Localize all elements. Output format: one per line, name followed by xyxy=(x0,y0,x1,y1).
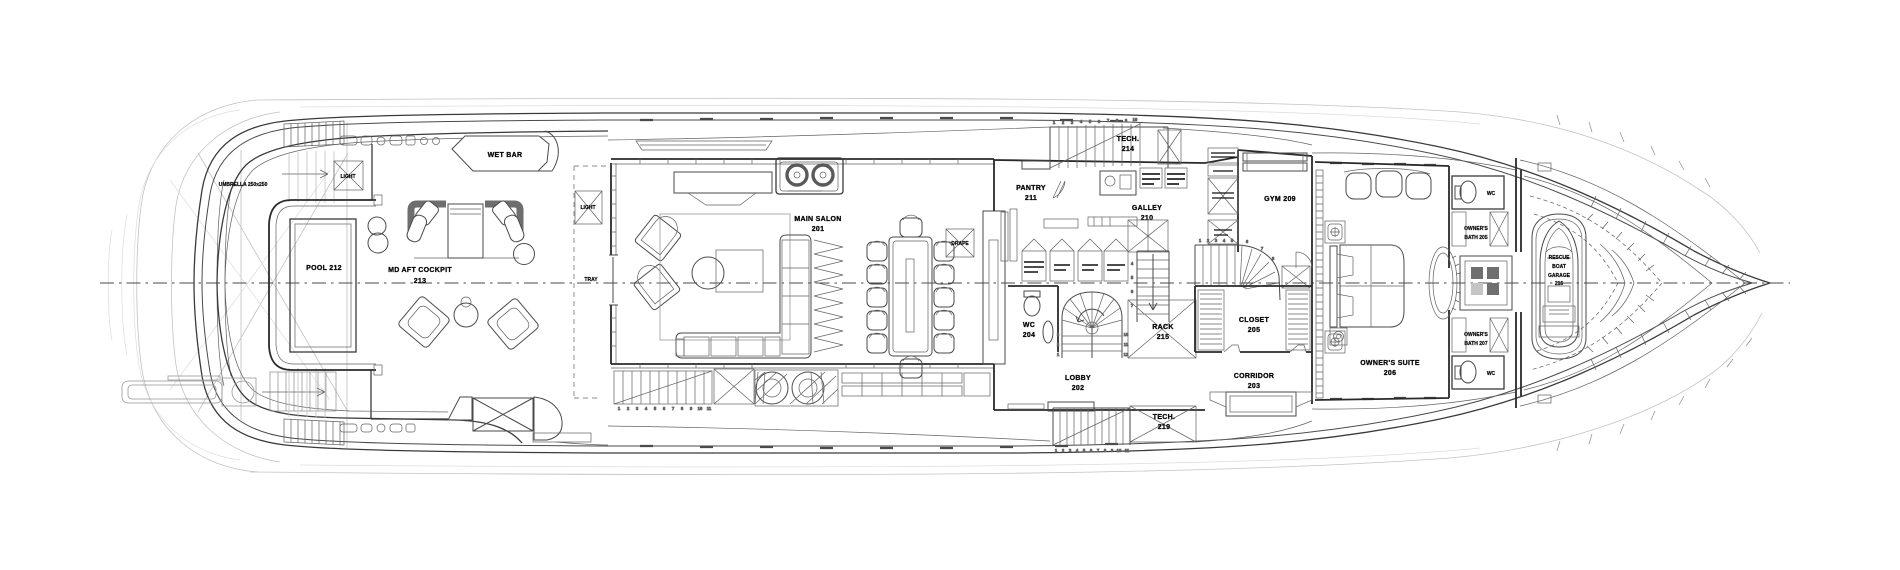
svg-text:WC: WC xyxy=(1487,371,1496,377)
svg-text:210: 210 xyxy=(1141,215,1154,222)
svg-text:204: 204 xyxy=(1023,332,1036,339)
svg-text:BATH 207: BATH 207 xyxy=(1464,341,1487,347)
svg-text:OWNER'S: OWNER'S xyxy=(1464,226,1488,232)
svg-text:UMBRELLA 250x250: UMBRELLA 250x250 xyxy=(219,182,268,188)
svg-text:TRAY: TRAY xyxy=(584,277,598,283)
svg-text:202: 202 xyxy=(1072,385,1085,392)
svg-text:BATH 205: BATH 205 xyxy=(1464,235,1487,241)
svg-text:WC: WC xyxy=(1023,322,1035,329)
svg-text:201: 201 xyxy=(812,226,825,233)
svg-text:TECH.: TECH. xyxy=(1153,414,1176,421)
svg-text:216: 216 xyxy=(1555,281,1564,287)
svg-text:211: 211 xyxy=(1025,195,1037,202)
svg-text:TECH.: TECH. xyxy=(1117,136,1140,143)
svg-text:219: 219 xyxy=(1158,424,1171,431)
svg-text:GARAGE: GARAGE xyxy=(1548,273,1571,279)
svg-text:11: 11 xyxy=(707,406,712,411)
svg-text:203: 203 xyxy=(1248,383,1261,390)
svg-text:206: 206 xyxy=(1384,370,1397,377)
svg-text:LIGHT: LIGHT xyxy=(341,174,356,180)
svg-text:10: 10 xyxy=(1133,117,1138,122)
svg-text:BOAT: BOAT xyxy=(1552,264,1566,270)
svg-text:215: 215 xyxy=(1157,334,1170,341)
svg-text:RESCUE: RESCUE xyxy=(1549,255,1571,261)
svg-text:214: 214 xyxy=(1122,146,1135,153)
svg-text:PANTRY: PANTRY xyxy=(1016,185,1046,192)
svg-text:RACK: RACK xyxy=(1152,324,1173,331)
svg-text:WET BAR: WET BAR xyxy=(488,152,523,159)
svg-text:POOL 212: POOL 212 xyxy=(306,265,342,272)
svg-text:MD AFT COCKPIT: MD AFT COCKPIT xyxy=(388,267,452,274)
svg-text:205: 205 xyxy=(1248,327,1261,334)
svg-text:OWNER'S: OWNER'S xyxy=(1464,332,1488,338)
svg-text:WC: WC xyxy=(1487,191,1496,197)
svg-text:OWNER'S SUITE: OWNER'S SUITE xyxy=(1360,360,1420,367)
svg-text:CLOSET: CLOSET xyxy=(1239,317,1270,324)
svg-text:10: 10 xyxy=(698,406,703,411)
svg-text:11: 11 xyxy=(1125,448,1130,453)
svg-text:MAIN SALON: MAIN SALON xyxy=(794,216,841,223)
svg-text:213: 213 xyxy=(414,278,427,285)
svg-text:LOBBY: LOBBY xyxy=(1065,375,1091,382)
svg-text:CORRIDOR: CORRIDOR xyxy=(1234,373,1275,380)
svg-text:GYM 209: GYM 209 xyxy=(1264,196,1296,203)
svg-text:DRAPE: DRAPE xyxy=(951,241,969,247)
svg-text:LIGHT: LIGHT xyxy=(581,205,596,211)
svg-text:GALLEY: GALLEY xyxy=(1132,205,1162,212)
svg-text:10: 10 xyxy=(1117,448,1122,453)
